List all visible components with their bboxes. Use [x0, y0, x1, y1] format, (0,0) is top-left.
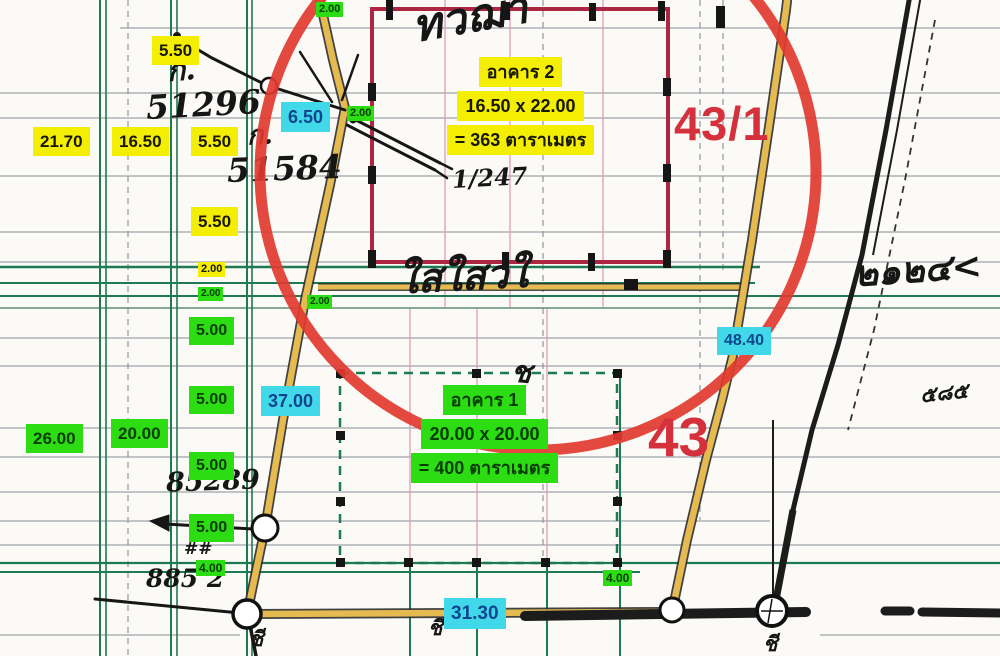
measurement-label: 5.50 — [191, 207, 238, 236]
building1-dimensions: 20.00 x 20.00 — [421, 419, 547, 449]
measurement-label: 2.00 — [198, 262, 225, 277]
measurement-label: 4.00 — [196, 560, 225, 576]
measurement-label: 5.50 — [152, 36, 199, 65]
cadastral-survey-map: ก.51296ก.51584ทวฌา1/247ใสใสวใ๒๑๒๔<85289#… — [0, 0, 1000, 656]
measurement-label: 5.00 — [189, 386, 234, 414]
building2-title: อาคาร 2 — [479, 57, 563, 87]
measurement-label: 2.00 — [347, 106, 374, 121]
measurement-label: 16.50 — [112, 127, 169, 156]
measurement-label: 5.00 — [189, 514, 234, 542]
building2-info-block: อาคาร 2 16.50 x 22.00 = 363 ตาราเมตร — [418, 55, 623, 157]
building1-title: อาคาร 1 — [443, 385, 527, 415]
building1-info-block: อาคาร 1 20.00 x 20.00 = 400 ตาราเมตร — [392, 383, 577, 485]
measurement-label: 6.50 — [281, 102, 330, 132]
measurement-label: 5.00 — [189, 317, 234, 345]
measurement-label: 31.30 — [444, 598, 506, 629]
parcel-number-43-1: 43/1 — [674, 100, 769, 147]
building1-area: = 400 ตาราเมตร — [411, 453, 559, 483]
measurement-label: 48.40 — [717, 327, 771, 355]
measurement-label: 4.00 — [603, 570, 632, 586]
measurement-label: 21.70 — [33, 127, 90, 156]
measurement-label: 2.00 — [198, 287, 223, 301]
measurement-label: 5.00 — [189, 452, 234, 480]
building2-area: = 363 ตาราเมตร — [447, 125, 595, 155]
building2-dimensions: 16.50 x 22.00 — [457, 91, 583, 121]
parcel-number-43: 43 — [648, 410, 709, 465]
measurement-label: 5.50 — [191, 127, 238, 156]
measurement-label: 20.00 — [111, 419, 168, 448]
measurement-label: 2.00 — [307, 295, 332, 309]
measurement-label: 26.00 — [26, 424, 83, 453]
measurement-label: 37.00 — [261, 386, 320, 416]
measurement-label: 2.00 — [316, 2, 343, 17]
